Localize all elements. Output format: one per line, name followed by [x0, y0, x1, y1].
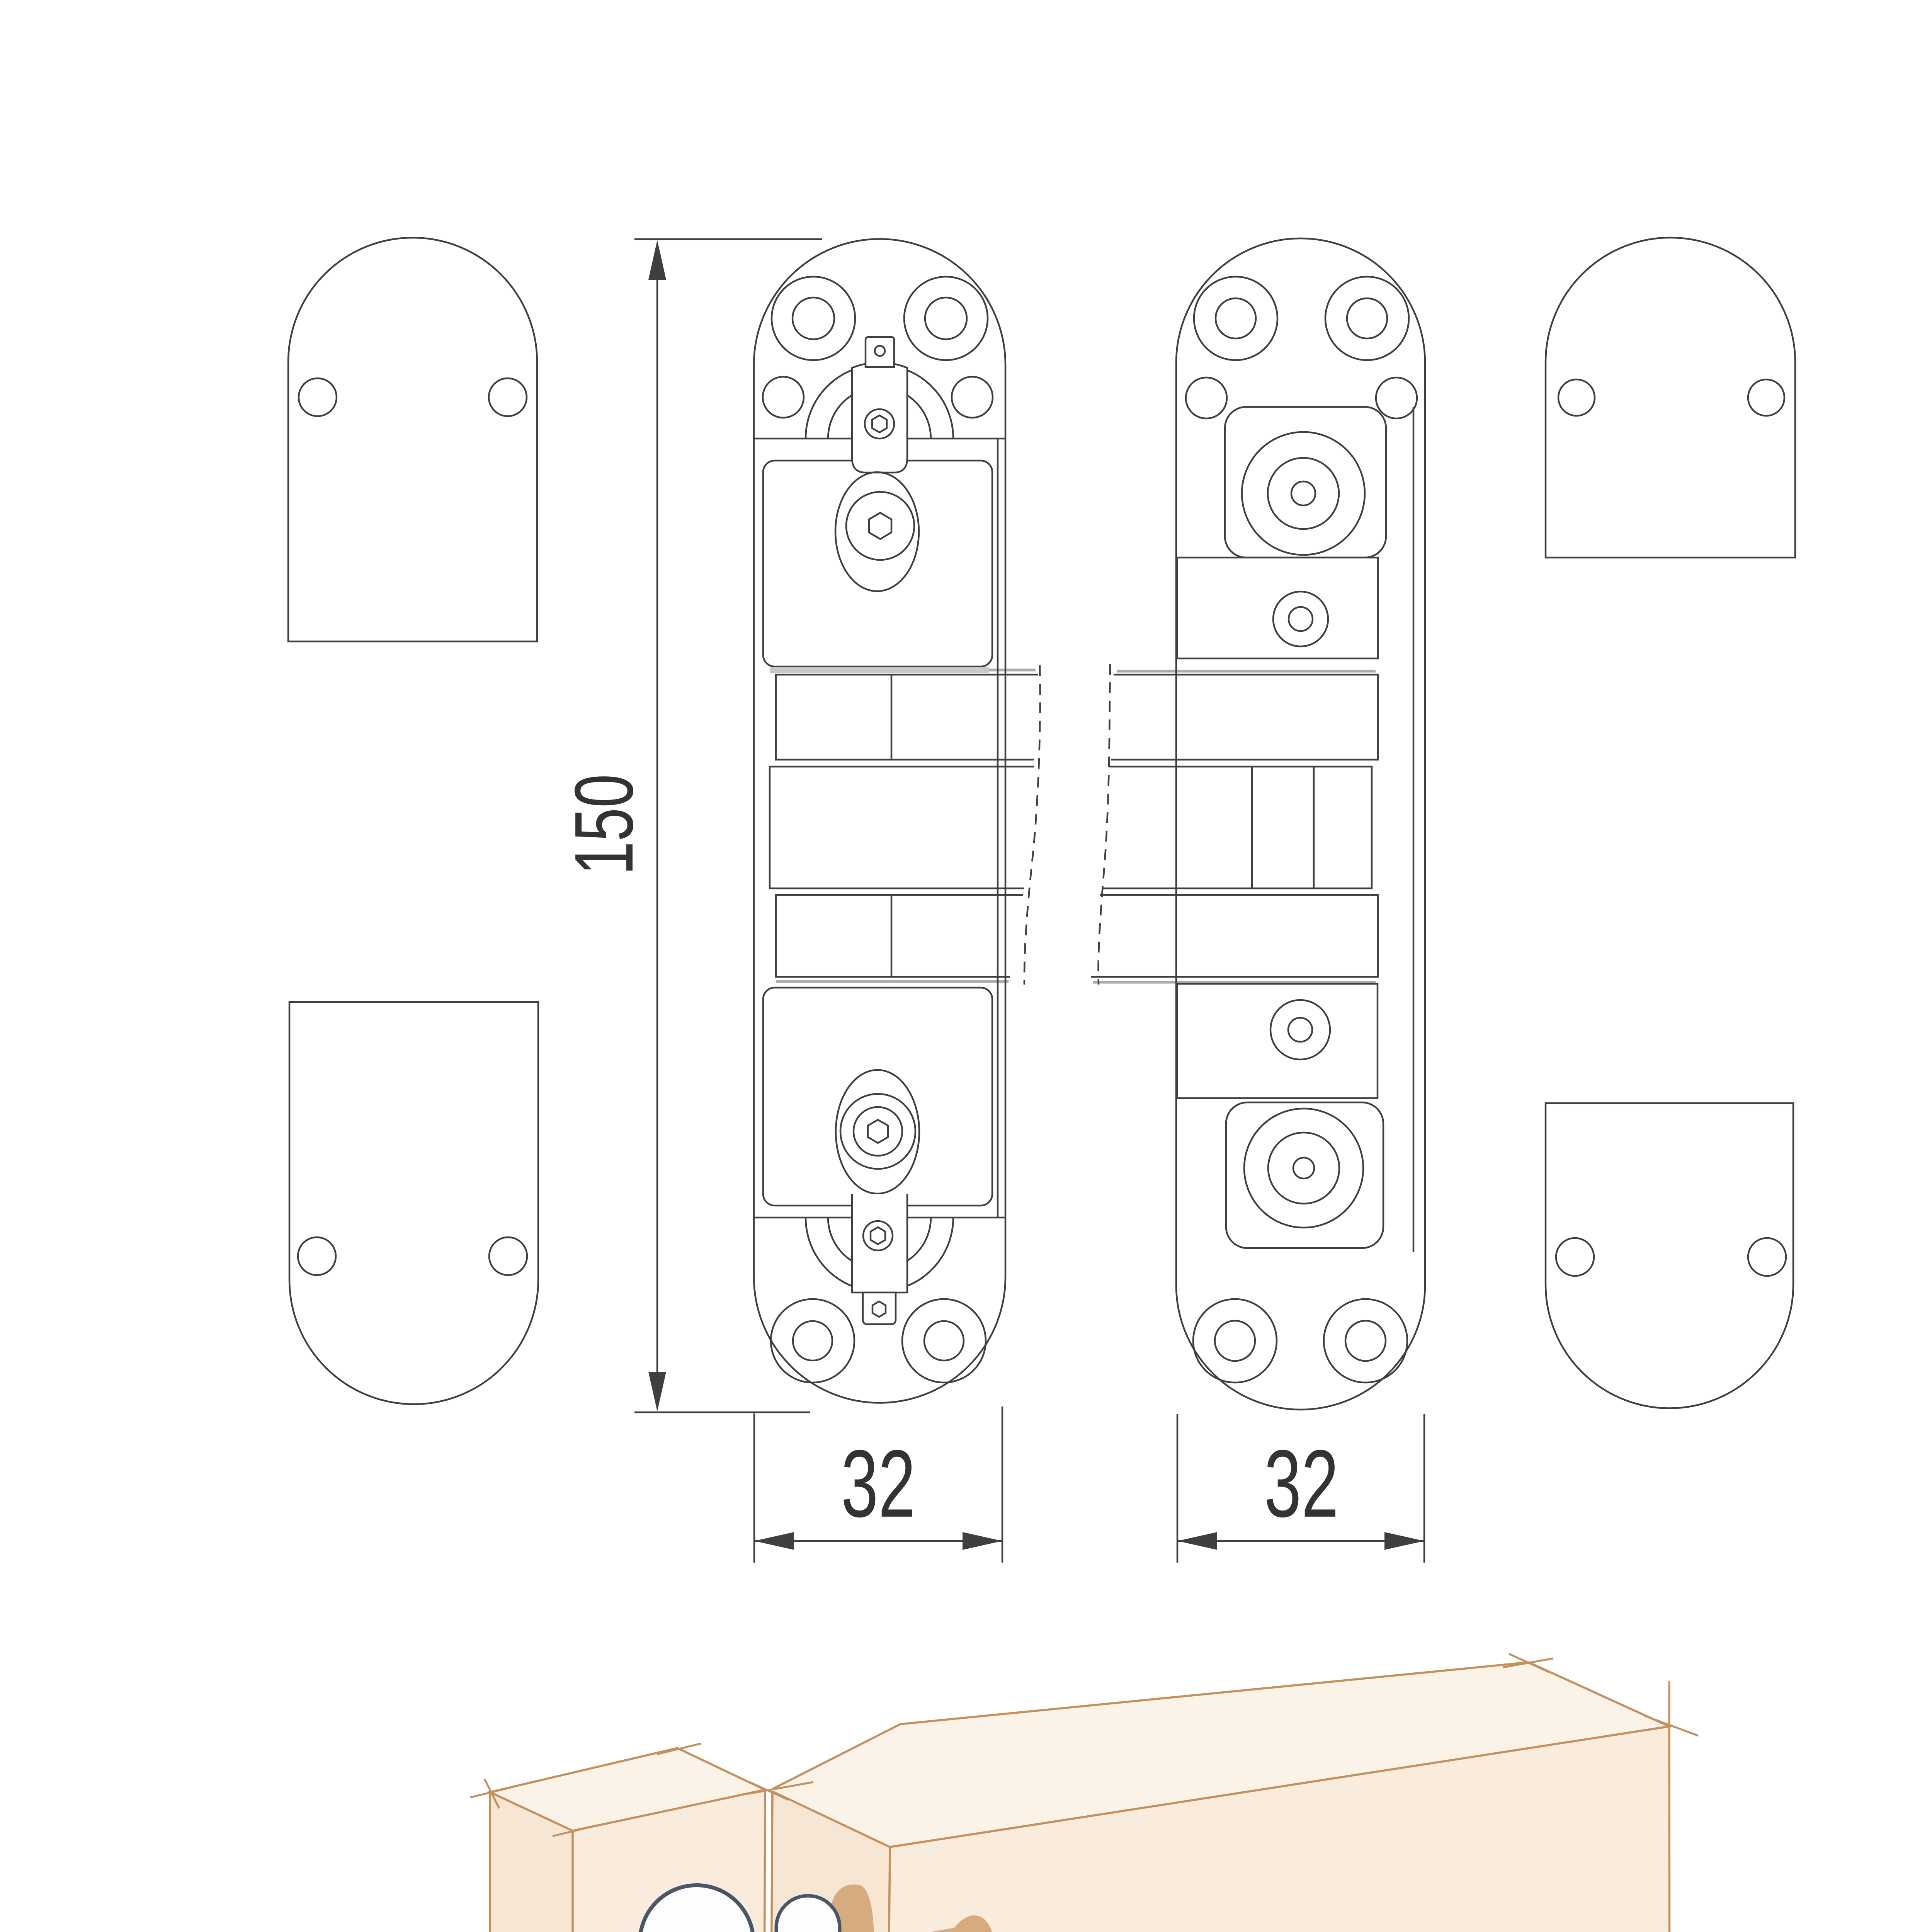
svg-text:150: 150 [558, 774, 650, 875]
svg-text:32: 32 [841, 1430, 915, 1537]
svg-text:32: 32 [1264, 1430, 1338, 1537]
